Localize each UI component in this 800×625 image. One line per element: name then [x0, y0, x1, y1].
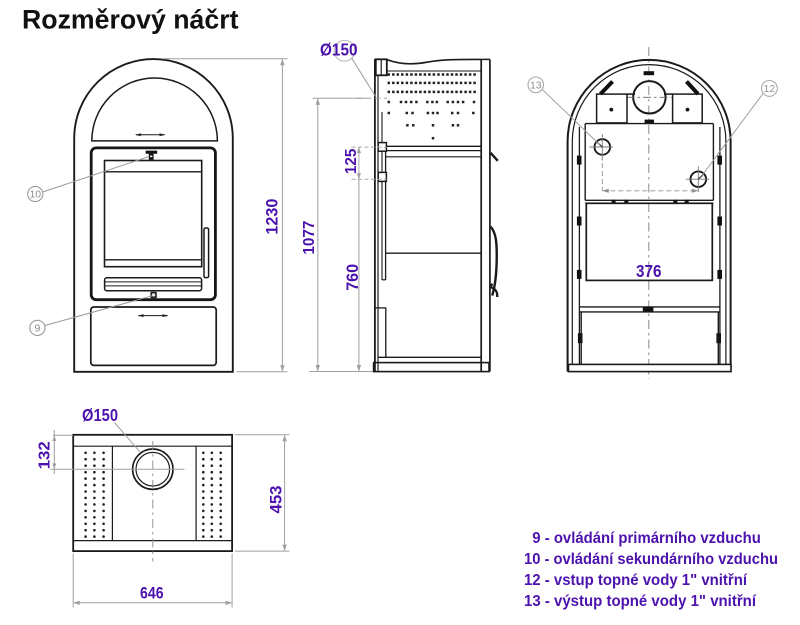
svg-text:Ø150: Ø150 [82, 405, 118, 425]
svg-text:125: 125 [343, 149, 360, 175]
svg-text:Ø150: Ø150 [320, 39, 358, 59]
svg-text:12 - vstup topné vody 1" vnitř: 12 - vstup topné vody 1" vnitřní [524, 572, 748, 589]
svg-text:12: 12 [764, 83, 776, 95]
svg-text:9: 9 [34, 323, 40, 335]
svg-text:Rozměrový náčrt: Rozměrový náčrt [22, 5, 239, 35]
svg-text:1077: 1077 [301, 221, 318, 255]
svg-text:10: 10 [29, 189, 41, 201]
svg-text:453: 453 [267, 486, 285, 514]
svg-text:13: 13 [530, 80, 542, 92]
svg-text:132: 132 [37, 441, 54, 469]
svg-text:9 - ovládání primárního vzduch: 9 - ovládání primárního vzduchu [532, 530, 761, 547]
svg-text:376: 376 [636, 261, 662, 281]
svg-text:10 - ovládání sekundárního vzd: 10 - ovládání sekundárního vzduchu [524, 551, 778, 568]
svg-text:760: 760 [344, 264, 362, 291]
svg-text:13 - výstup topné vody 1" vnit: 13 - výstup topné vody 1" vnitřní [524, 593, 757, 610]
svg-text:1230: 1230 [263, 199, 282, 235]
svg-text:646: 646 [140, 584, 164, 603]
